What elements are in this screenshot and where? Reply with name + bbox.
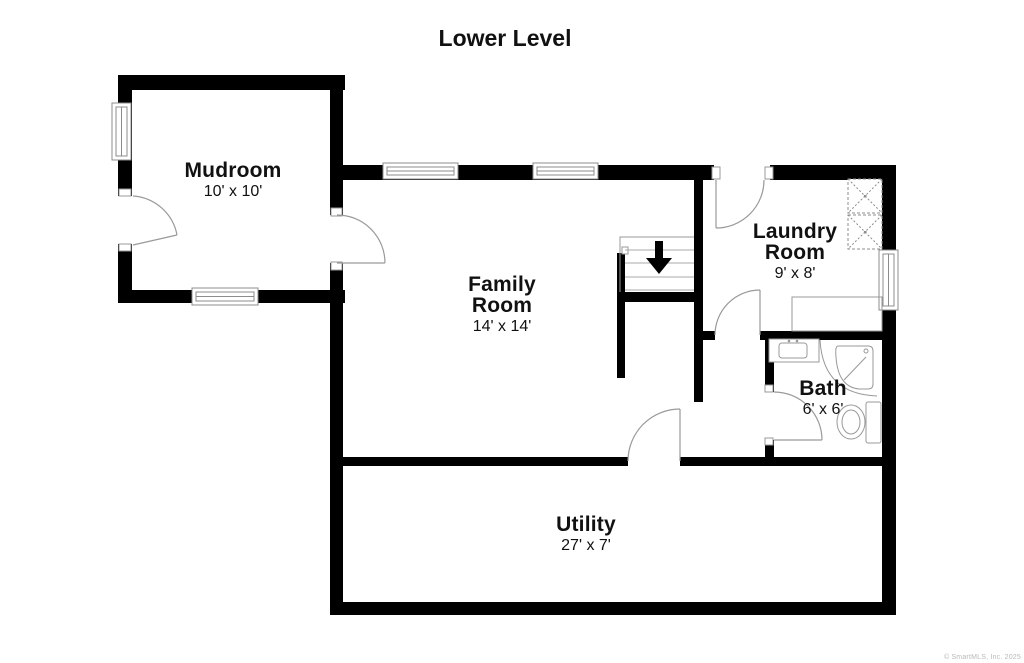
bath-sink-icon bbox=[769, 339, 819, 362]
window-mudroom-left bbox=[112, 103, 131, 160]
room-dims-mudroom: 10' x 10' bbox=[184, 184, 281, 200]
dryer-icon bbox=[848, 215, 882, 249]
door-laundry-hall bbox=[715, 290, 760, 335]
page-title: Lower Level bbox=[439, 27, 572, 50]
window-family-1 bbox=[383, 163, 458, 179]
room-dims-utility: 27' x 7' bbox=[556, 538, 616, 554]
door-utility bbox=[628, 409, 680, 461]
window-mudroom-bottom bbox=[192, 288, 258, 305]
room-name-mudroom: Mudroom bbox=[184, 160, 281, 181]
room-name-family: Family Room bbox=[447, 274, 557, 316]
washer-icon bbox=[848, 179, 882, 213]
window-family-2 bbox=[533, 163, 598, 179]
room-dims-family: 14' x 14' bbox=[447, 319, 557, 335]
laundry-counter bbox=[792, 297, 882, 331]
door-mudroom-family bbox=[337, 215, 385, 263]
room-label-bath: Bath 6' x 6' bbox=[799, 378, 846, 418]
room-label-utility: Utility 27' x 7' bbox=[556, 514, 616, 554]
room-label-mudroom: Mudroom 10' x 10' bbox=[184, 160, 281, 200]
copyright-watermark: © SmartMLS, Inc. 2025 bbox=[944, 654, 1021, 661]
room-name-bath: Bath bbox=[799, 378, 846, 399]
stairs-down-arrow-icon bbox=[646, 241, 672, 274]
room-label-family: Family Room 14' x 14' bbox=[447, 274, 557, 335]
room-dims-bath: 6' x 6' bbox=[799, 402, 846, 418]
room-name-laundry: Laundry Room bbox=[740, 221, 850, 263]
room-dims-laundry: 9' x 8' bbox=[740, 266, 850, 282]
door-mudroom-exterior bbox=[133, 196, 177, 245]
room-name-utility: Utility bbox=[556, 514, 616, 535]
floorplan-page: Lower Level Mudroom 10' x 10' Family Roo… bbox=[0, 0, 1024, 663]
door-jambs bbox=[119, 167, 773, 445]
room-label-laundry: Laundry Room 9' x 8' bbox=[740, 221, 850, 282]
stairs bbox=[620, 237, 694, 292]
